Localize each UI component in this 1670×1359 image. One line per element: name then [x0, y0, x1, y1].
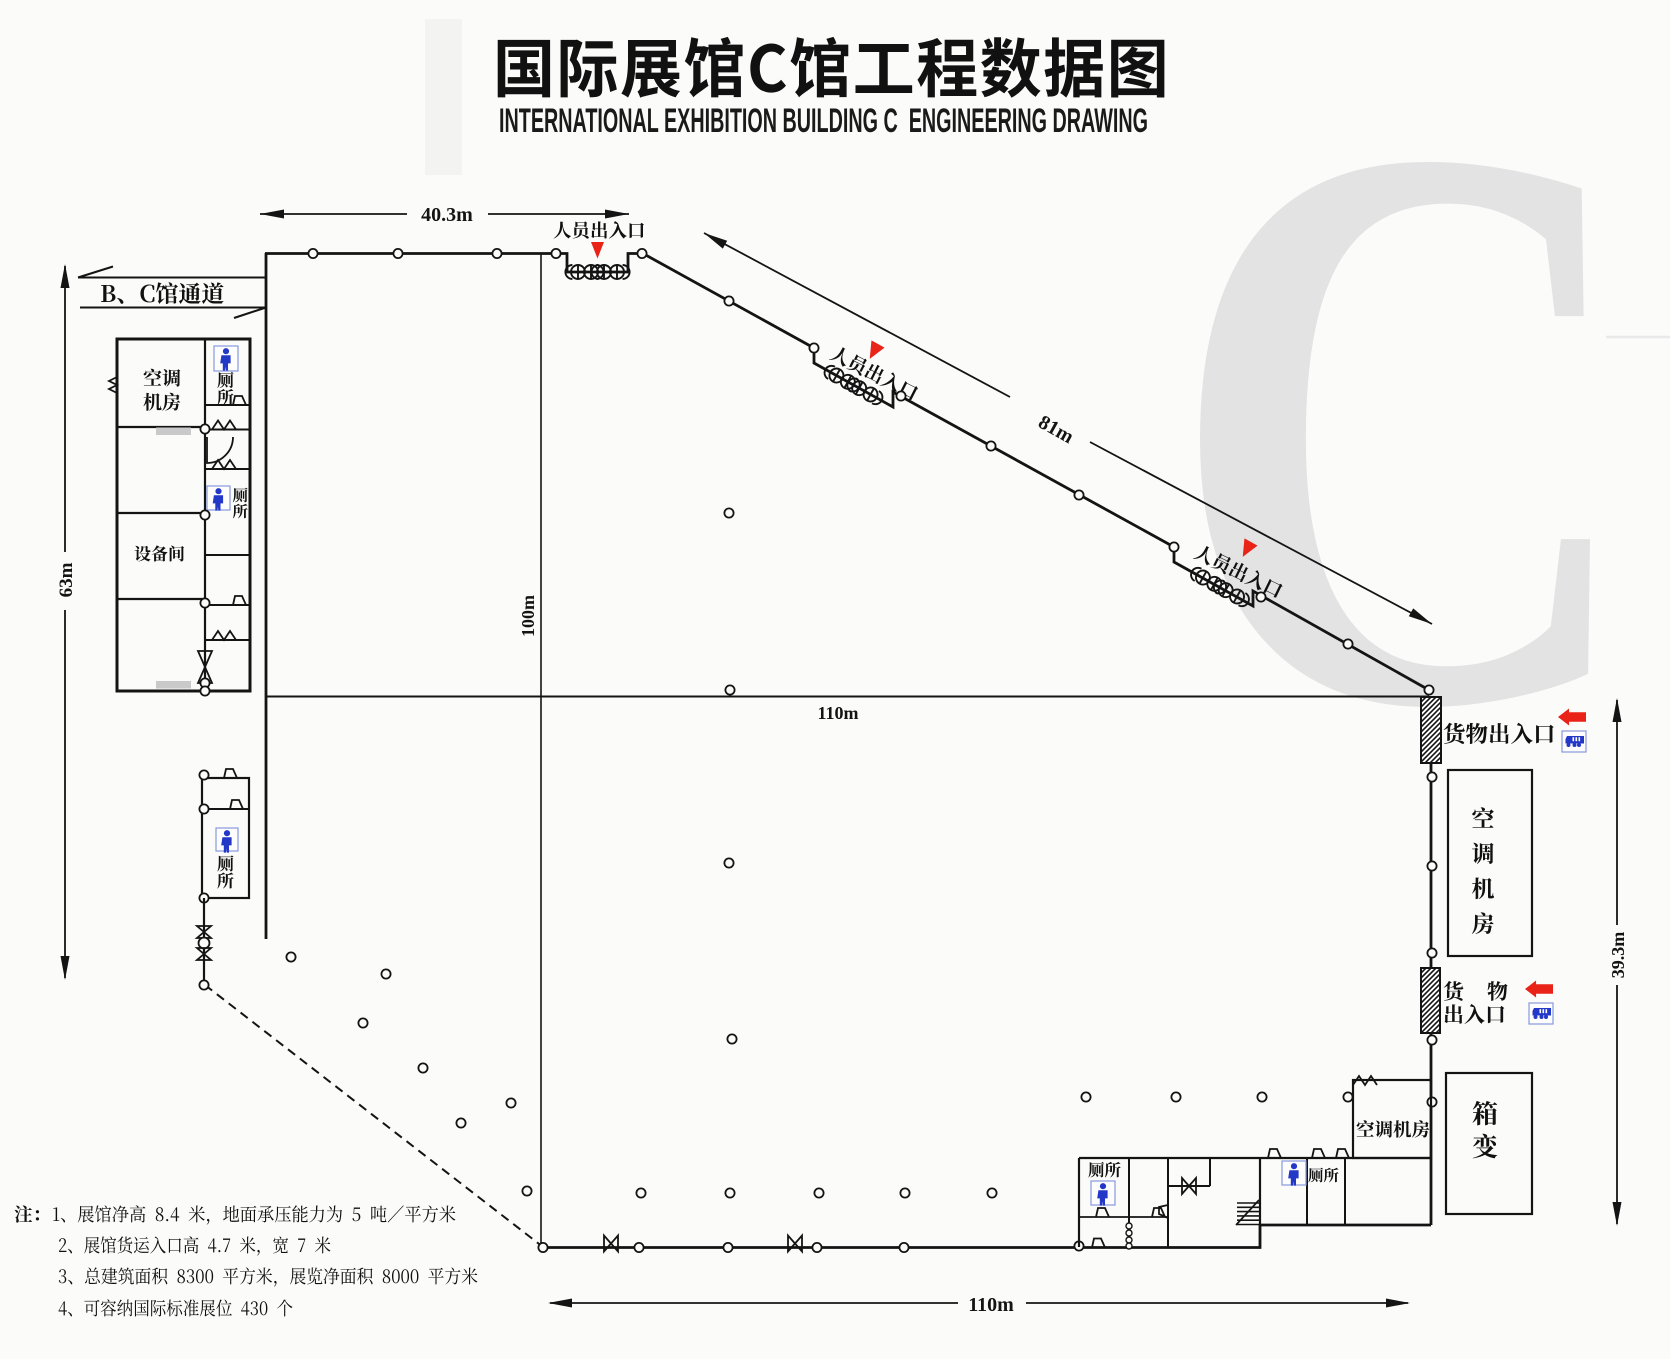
svg-text:110m: 110m — [817, 703, 858, 723]
svg-text:63m: 63m — [56, 562, 77, 597]
svg-text:39.3m: 39.3m — [1608, 932, 1628, 979]
svg-text:40.3m: 40.3m — [421, 204, 473, 226]
svg-text:100m: 100m — [518, 595, 538, 637]
svg-text:110m: 110m — [968, 1294, 1014, 1316]
svg-text:INTERNATIONAL EXHIBITION BUILD: INTERNATIONAL EXHIBITION BUILDING C ENGI… — [499, 102, 1148, 140]
